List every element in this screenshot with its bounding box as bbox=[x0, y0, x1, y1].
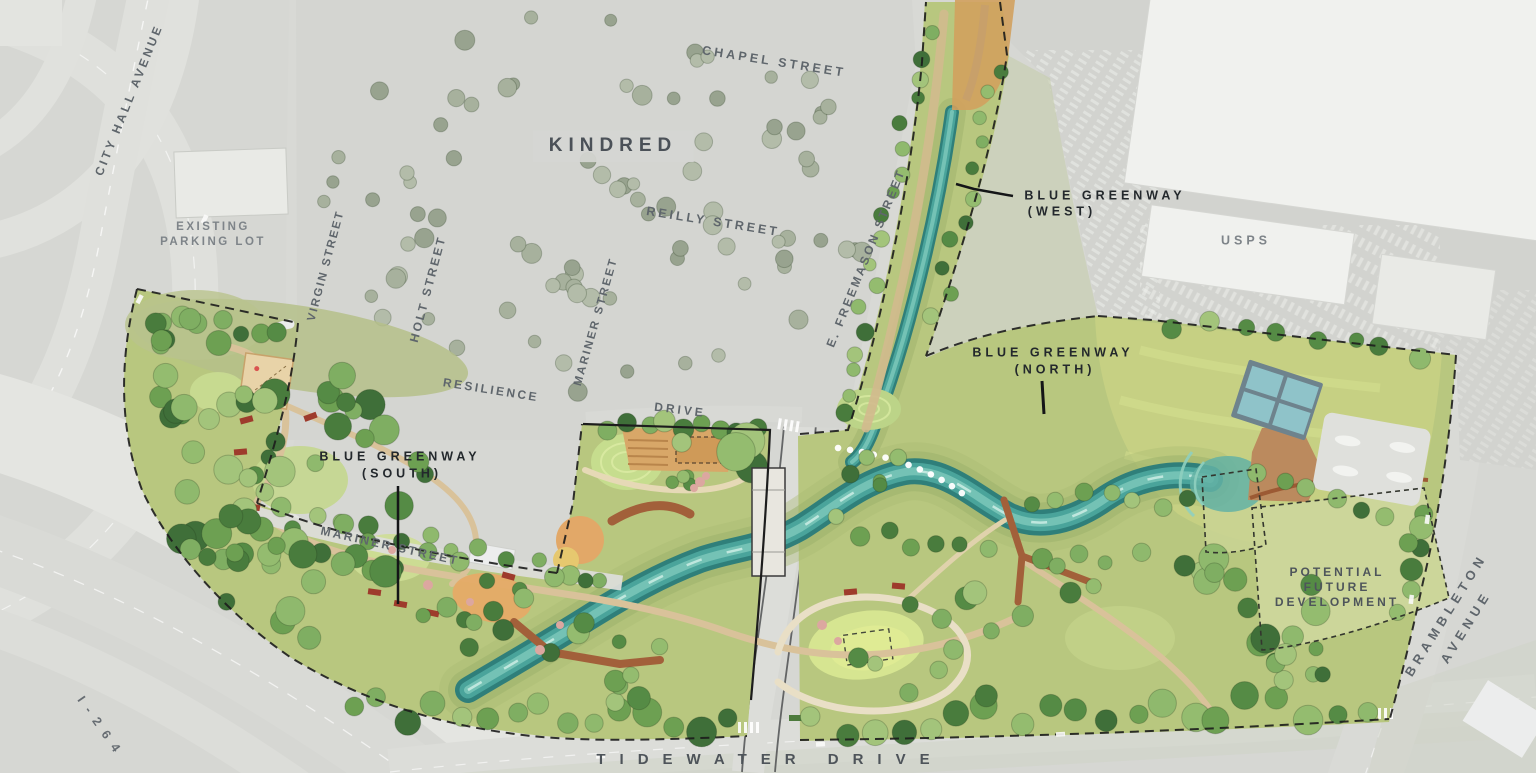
bridge bbox=[752, 468, 785, 576]
map-graphics bbox=[0, 0, 1536, 773]
site-plan-map: CITY HALL AVENUE EXISTING PARKING LOT KI… bbox=[0, 0, 1536, 773]
